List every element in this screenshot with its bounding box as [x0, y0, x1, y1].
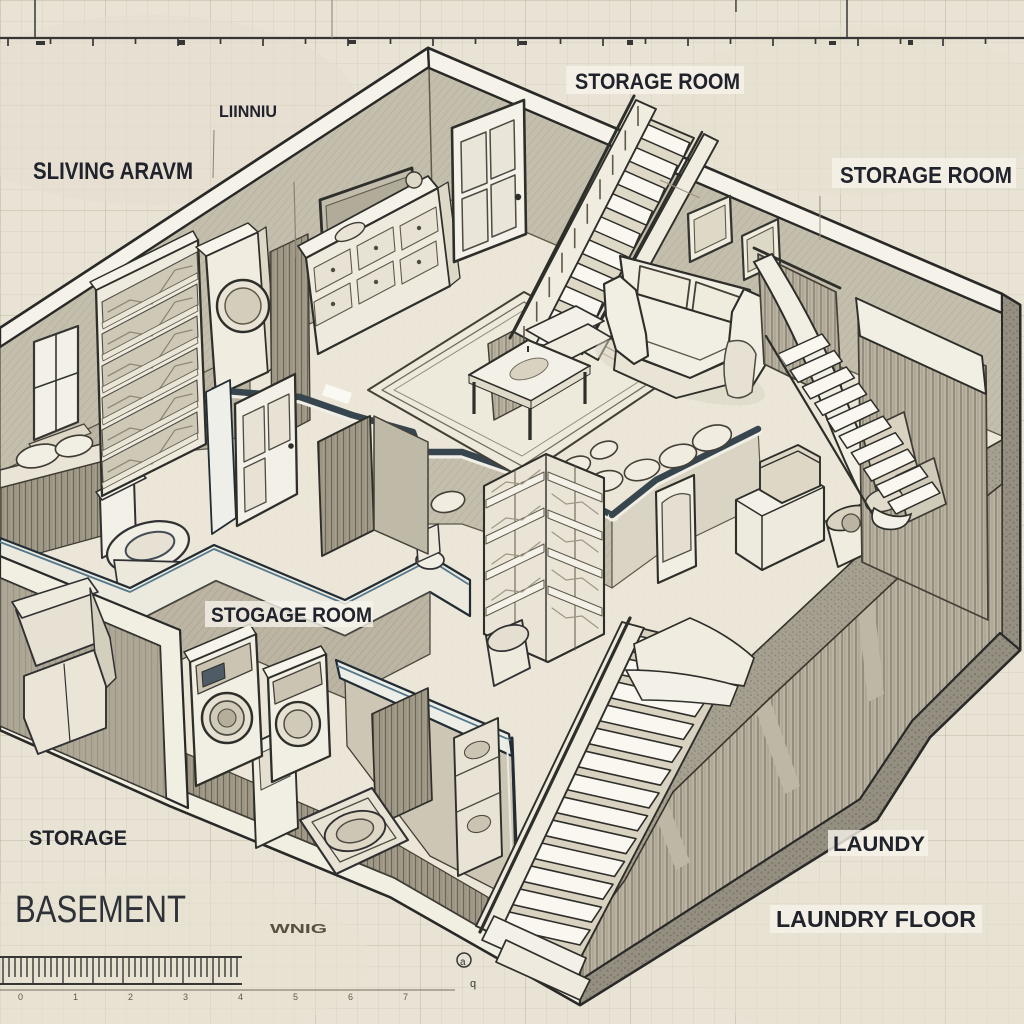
svg-text:STORAGE ROOM: STORAGE ROOM: [575, 69, 740, 94]
svg-text:SLIVING ARAVM: SLIVING ARAVM: [33, 158, 193, 185]
svg-text:STOGAGE ROOM: STOGAGE ROOM: [211, 604, 372, 627]
svg-text:STORAGE: STORAGE: [29, 827, 127, 850]
svg-text:WNIG: WNIG: [270, 921, 327, 936]
svg-text:BASEMENT: BASEMENT: [15, 889, 186, 931]
svg-text:STORAGE ROOM: STORAGE ROOM: [840, 162, 1012, 188]
svg-text:LAUNDY: LAUNDY: [833, 833, 925, 856]
svg-text:LIINNIU: LIINNIU: [219, 102, 277, 121]
svg-text:LAUNDRY FLOOR: LAUNDRY FLOOR: [776, 906, 976, 932]
